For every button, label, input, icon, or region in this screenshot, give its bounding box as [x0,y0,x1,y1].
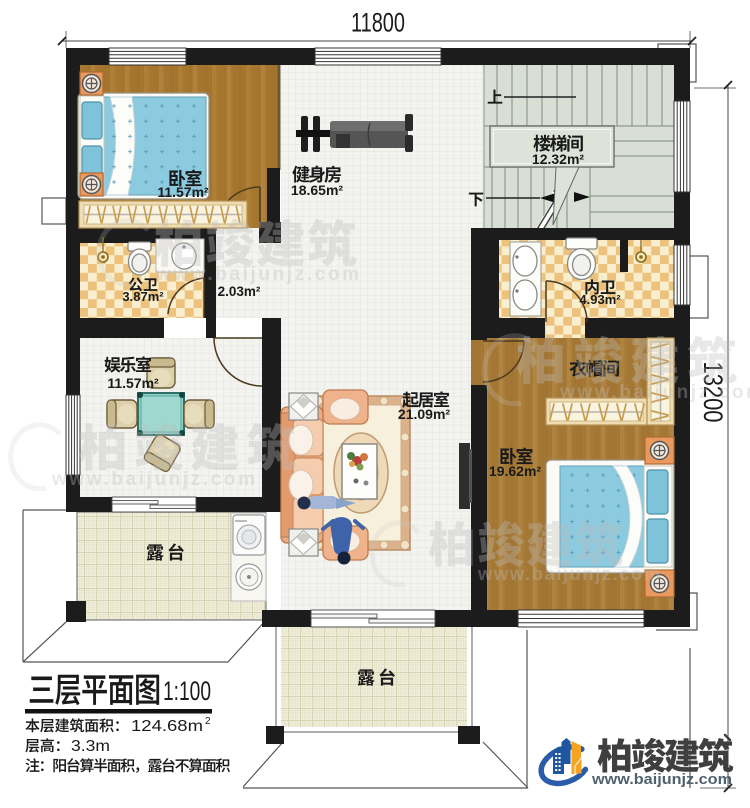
svg-text:11.57m²: 11.57m² [107,375,159,391]
svg-text:18.65m²: 18.65m² [291,182,343,198]
svg-text:2.03m²: 2.03m² [218,284,261,299]
svg-text:www.baijunjz.com: www.baijunjz.com [155,264,362,285]
svg-text:3.87m²: 3.87m² [122,289,164,304]
svg-text:19.62m²: 19.62m² [489,463,541,479]
svg-text:21.09m²: 21.09m² [398,406,450,422]
svg-text:124.68m: 124.68m [131,718,203,735]
svg-text:www.baijunjz.com: www.baijunjz.com [559,382,750,403]
svg-text:11800: 11800 [351,8,405,38]
svg-text:4.93m²: 4.93m² [579,292,621,307]
svg-text:1:100: 1:100 [163,676,211,706]
svg-text:12.32m²: 12.32m² [532,151,584,167]
svg-text:2: 2 [205,716,211,727]
svg-text:11.57m²: 11.57m² [157,184,209,200]
svg-text:www.baijunjz.com: www.baijunjz.com [51,469,258,490]
svg-text:www.baijunjz.com: www.baijunjz.com [477,563,662,584]
svg-text:www.baijunjz.com: www.baijunjz.com [591,772,732,788]
svg-text:3.3m: 3.3m [71,738,110,755]
